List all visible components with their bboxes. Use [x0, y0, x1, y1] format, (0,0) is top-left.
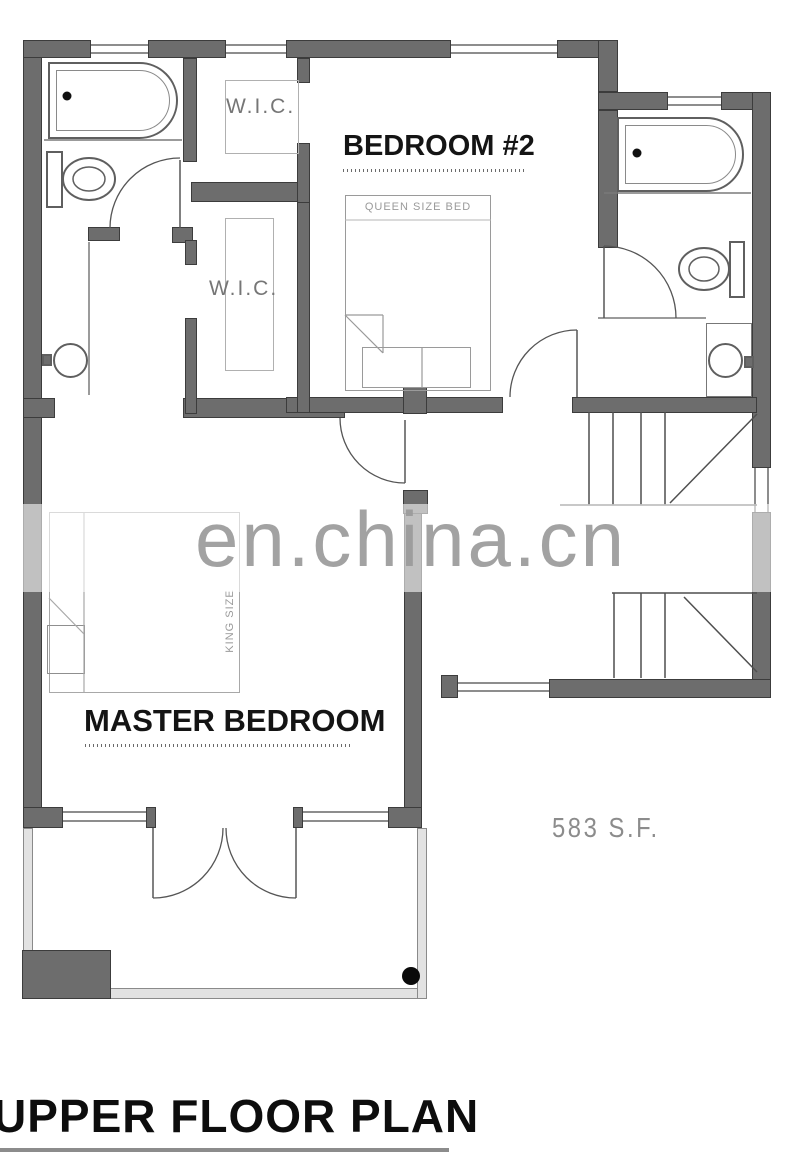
- title-underline: [0, 1148, 449, 1152]
- wall: [549, 679, 771, 698]
- wall: [286, 397, 503, 413]
- sink: [53, 343, 88, 378]
- faucet: [744, 356, 754, 368]
- wic-lower-label: W.I.C.: [209, 277, 278, 301]
- toilet-tank: [729, 241, 745, 298]
- wall: [148, 40, 226, 58]
- area-label: 583 S.F.: [552, 812, 660, 844]
- floor-plan: BEDROOM #2 MASTER BEDROOM W.I.C. W.I.C. …: [0, 0, 800, 1162]
- faucet: [42, 354, 52, 366]
- window: [303, 811, 388, 822]
- watermark-text: en.china.cn: [195, 494, 627, 585]
- bathtub-inner: [56, 70, 170, 131]
- page-title: UPPER FLOOR PLAN: [0, 1089, 479, 1143]
- wall: [183, 58, 197, 162]
- wall: [146, 807, 156, 828]
- nightstand: [47, 625, 85, 674]
- window: [668, 96, 721, 106]
- wall: [88, 227, 120, 241]
- wall: [598, 92, 668, 110]
- window: [451, 44, 557, 54]
- window: [63, 811, 146, 822]
- bedroom2-underline: [343, 169, 525, 172]
- wall: [23, 40, 42, 828]
- wall: [572, 397, 757, 413]
- wall: [23, 40, 91, 58]
- wall: [598, 110, 618, 248]
- wall: [441, 675, 458, 698]
- wall: [185, 318, 197, 414]
- toilet-tank: [46, 151, 63, 208]
- wall: [403, 387, 427, 414]
- wall: [598, 40, 618, 92]
- window: [91, 44, 148, 54]
- wall: [185, 240, 197, 265]
- wall: [23, 398, 55, 418]
- window: [226, 44, 286, 54]
- wall: [297, 202, 310, 413]
- master-bedroom-label: MASTER BEDROOM: [84, 703, 385, 739]
- wall: [286, 40, 451, 58]
- wall: [191, 182, 310, 202]
- bathtub-inner: [625, 125, 736, 184]
- wall: [23, 807, 63, 828]
- queen-bed-label: QUEEN SIZE BED: [350, 201, 486, 213]
- master-bedroom-underline: [85, 744, 353, 747]
- bed-bench: [362, 347, 471, 388]
- planter: [22, 950, 111, 999]
- window: [458, 682, 549, 692]
- wall: [293, 807, 303, 828]
- balcony-wall: [417, 828, 427, 999]
- wic-upper-label: W.I.C.: [226, 95, 295, 119]
- bedroom2-label: BEDROOM #2: [343, 130, 535, 163]
- sink: [708, 343, 743, 378]
- wall: [388, 807, 422, 828]
